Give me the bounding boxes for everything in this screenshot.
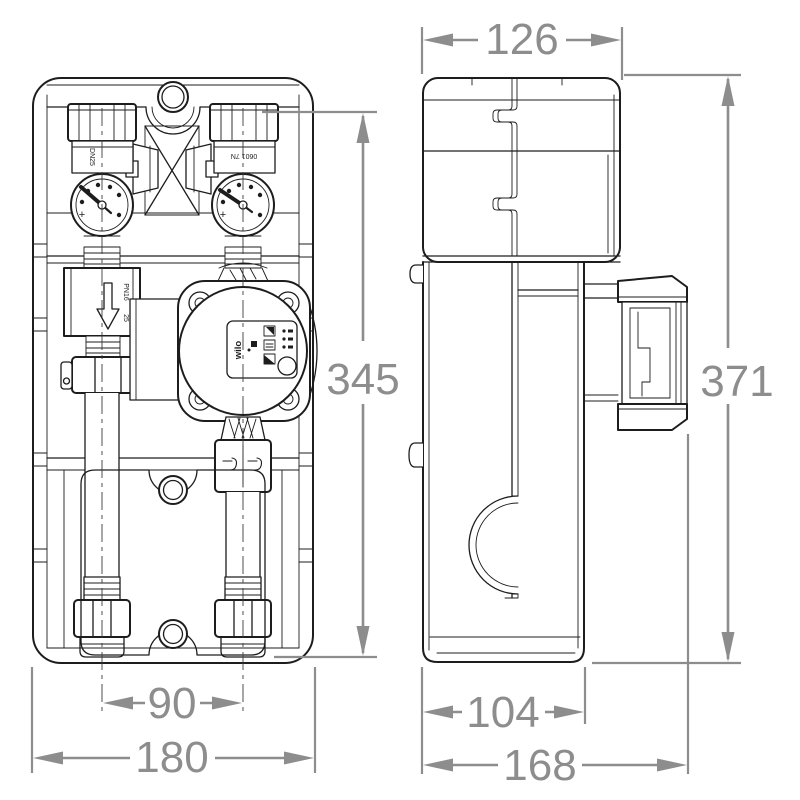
dim-text-side-depth-lower: 104	[466, 688, 539, 737]
motor-bottom-flange	[618, 404, 687, 430]
pump-control-label: wilo	[227, 321, 297, 378]
valve-left-label: DN25	[88, 148, 95, 166]
dim-text-side-width: 126	[485, 15, 558, 64]
front-view: DN25 0601 7N +	[33, 78, 317, 663]
check-valve-pressure-label: PN16	[122, 283, 129, 301]
dim-text-side-depth-total: 168	[503, 741, 576, 790]
check-valve-size-label: 25	[122, 314, 129, 322]
valve-right-label: 0601 7N	[231, 152, 257, 159]
technical-drawing: DN25 0601 7N +	[0, 0, 800, 800]
motor-top-flange	[618, 276, 687, 302]
side-upper-shell	[423, 78, 620, 262]
wall-bracket-tab-upper	[410, 265, 423, 283]
motor-body	[622, 302, 687, 404]
pump-button	[278, 357, 296, 375]
drawing-page: DN25 0601 7N +	[0, 0, 800, 800]
dim-text-front-height: 345	[326, 355, 399, 404]
display-icons	[264, 326, 275, 364]
dim-text-side-height: 371	[700, 357, 773, 406]
dim-text-pipe-spacing: 90	[148, 679, 197, 728]
mounting-hole-top	[158, 82, 188, 112]
wall-bracket-tab-lower	[409, 443, 423, 467]
valve-body-right: 0601 7N	[214, 141, 275, 173]
pump-brand-logo: wilo	[233, 341, 244, 361]
gauge-left-mark: +	[79, 209, 85, 221]
union-nut-top-right	[210, 104, 278, 141]
gauge-right-mark: +	[220, 209, 226, 221]
valve-body-left: DN25	[72, 141, 133, 173]
dim-text-front-width: 180	[135, 733, 208, 782]
